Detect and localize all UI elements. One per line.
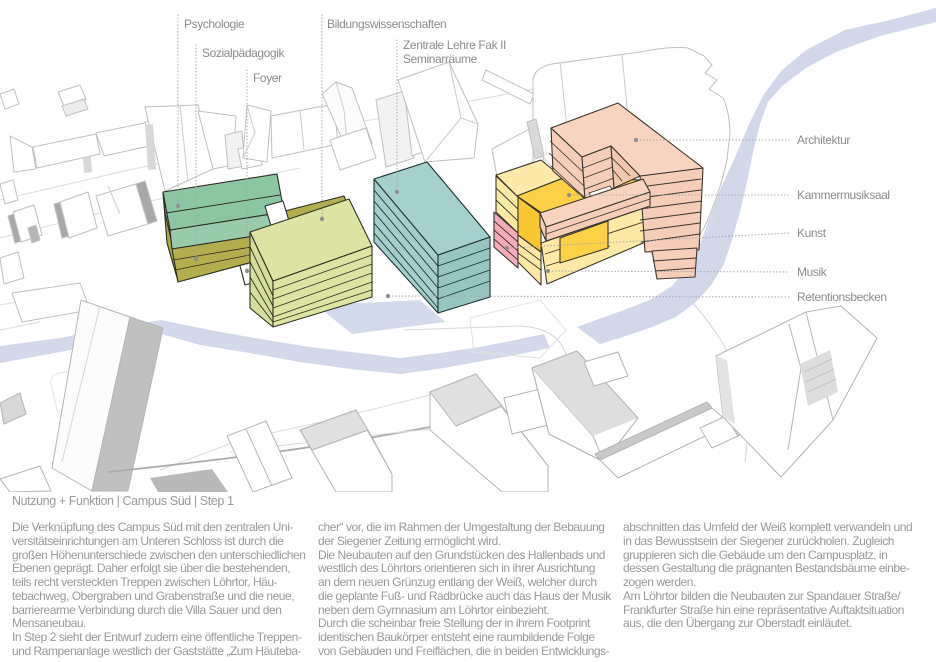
svg-text:Seminarräume: Seminarräume: [403, 52, 478, 66]
svg-text:Kammermusiksaal: Kammermusiksaal: [797, 188, 890, 202]
svg-text:Foyer: Foyer: [253, 71, 282, 85]
svg-text:Bildungswissenschaften: Bildungswissenschaften: [327, 17, 446, 31]
svg-text:Psychologie: Psychologie: [184, 17, 245, 31]
svg-text:Sozialpädagogik: Sozialpädagogik: [202, 46, 285, 60]
svg-text:Architektur: Architektur: [797, 133, 850, 147]
svg-text:Retentionsbecken: Retentionsbecken: [797, 290, 887, 304]
svg-text:Zentrale Lehre Fak II: Zentrale Lehre Fak II: [403, 38, 506, 52]
svg-text:Musik: Musik: [797, 265, 828, 279]
svg-text:Kunst: Kunst: [797, 226, 827, 240]
